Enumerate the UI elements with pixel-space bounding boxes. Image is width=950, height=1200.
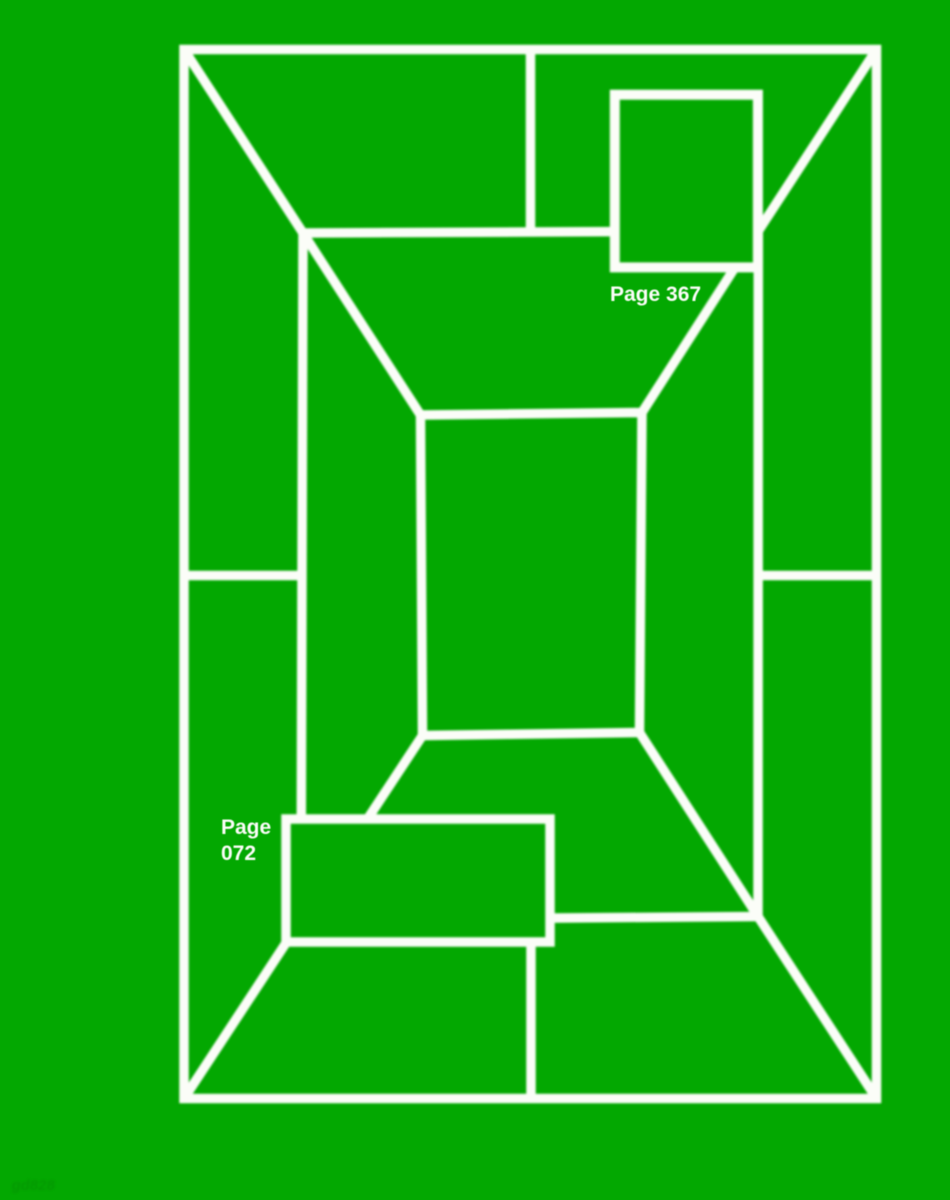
svg-text:Page 367: Page 367 bbox=[610, 283, 701, 306]
svg-text:072: 072 bbox=[221, 842, 256, 865]
svg-text:gd828: gd828 bbox=[10, 1177, 56, 1194]
svg-text:Page: Page bbox=[221, 816, 271, 839]
